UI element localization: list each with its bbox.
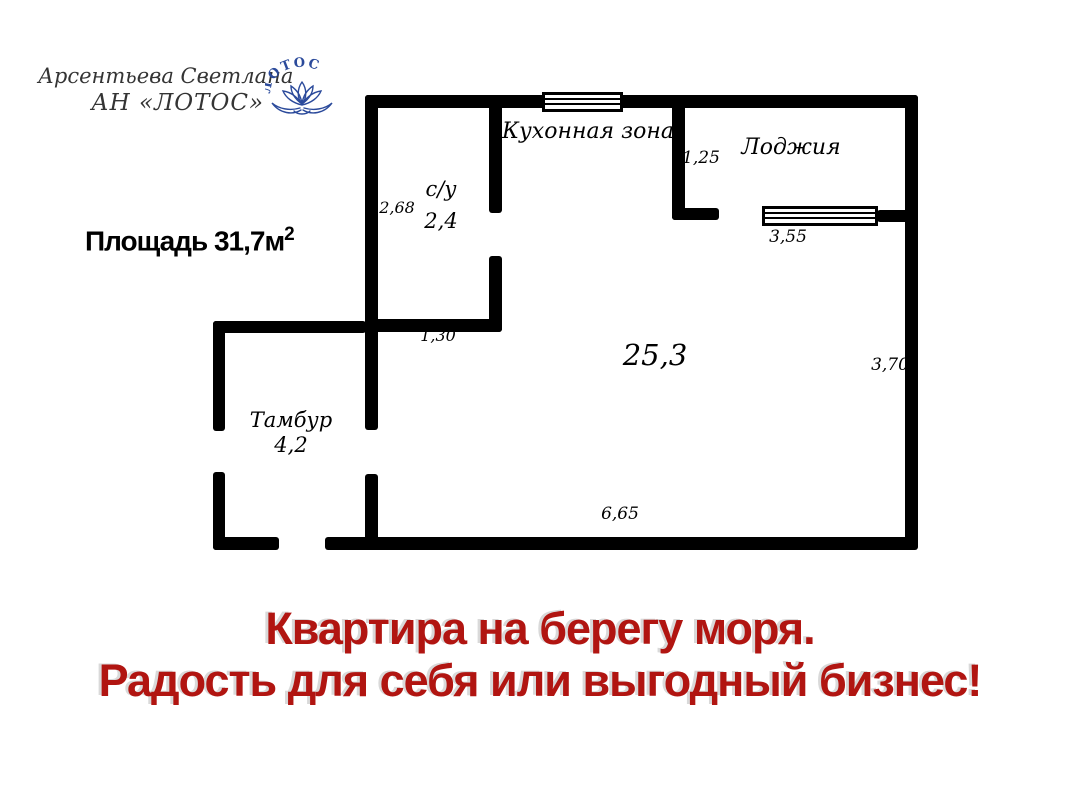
dim-bathroom-door: 1,30 — [408, 326, 468, 345]
loggia-label: Лоджия — [741, 135, 841, 160]
total-area-title: Площадь 31,7м2 — [85, 224, 294, 257]
kitchen-label: Кухонная зона — [488, 119, 688, 144]
agency-name: АН «ЛОТОС» — [38, 90, 264, 116]
wall-left-upper — [365, 95, 378, 430]
wall-loggia-bottom-right — [877, 210, 911, 222]
wall-loggia-bottom-stub — [672, 208, 719, 220]
lotus-flower-icon — [272, 82, 332, 114]
vestibule-area-label: 4,2 — [241, 433, 341, 457]
total-area-text: Площадь 31,7м — [85, 225, 284, 256]
wall-bottom-main — [325, 537, 918, 550]
tagline-line1: Квартира на берегу моря. — [0, 603, 1080, 655]
flyer-page: Арсентьева Светлана АН «ЛОТОС» ЛОТОС Пло… — [0, 0, 1080, 810]
vestibule-label: Тамбур — [241, 408, 341, 432]
total-area-sup: 2 — [284, 224, 294, 245]
wall-right — [905, 95, 918, 549]
dim-bathroom-height: 2,68 — [370, 198, 424, 217]
agent-name: Арсентьева Светлана — [38, 64, 264, 88]
tagline: Квартира на берегу моря. Радость для себ… — [0, 603, 1080, 707]
wall-vestibule-left-upper — [213, 321, 225, 431]
dim-bottom-wall: 6,65 — [588, 504, 652, 524]
wall-top — [365, 95, 918, 108]
wall-bathroom-right-upper — [489, 95, 502, 213]
dim-loggia-wall: 1,25 — [674, 148, 728, 168]
tagline-line2: Радость для себя или выгодный бизнес! — [0, 655, 1080, 707]
loggia-window — [762, 206, 878, 226]
wall-left-lower — [365, 474, 378, 550]
wall-vestibule-left-lower — [213, 472, 225, 550]
agency-header: Арсентьева Светлана АН «ЛОТОС» — [38, 64, 264, 116]
kitchen-window — [542, 92, 623, 112]
main-room-area-label: 25,3 — [600, 338, 710, 372]
dim-right-wall: 3,70 — [860, 355, 920, 375]
lotus-logo-icon: ЛОТОС — [265, 54, 339, 120]
dim-loggia-window: 3,55 — [758, 227, 818, 247]
wall-vestibule-top — [213, 321, 366, 333]
